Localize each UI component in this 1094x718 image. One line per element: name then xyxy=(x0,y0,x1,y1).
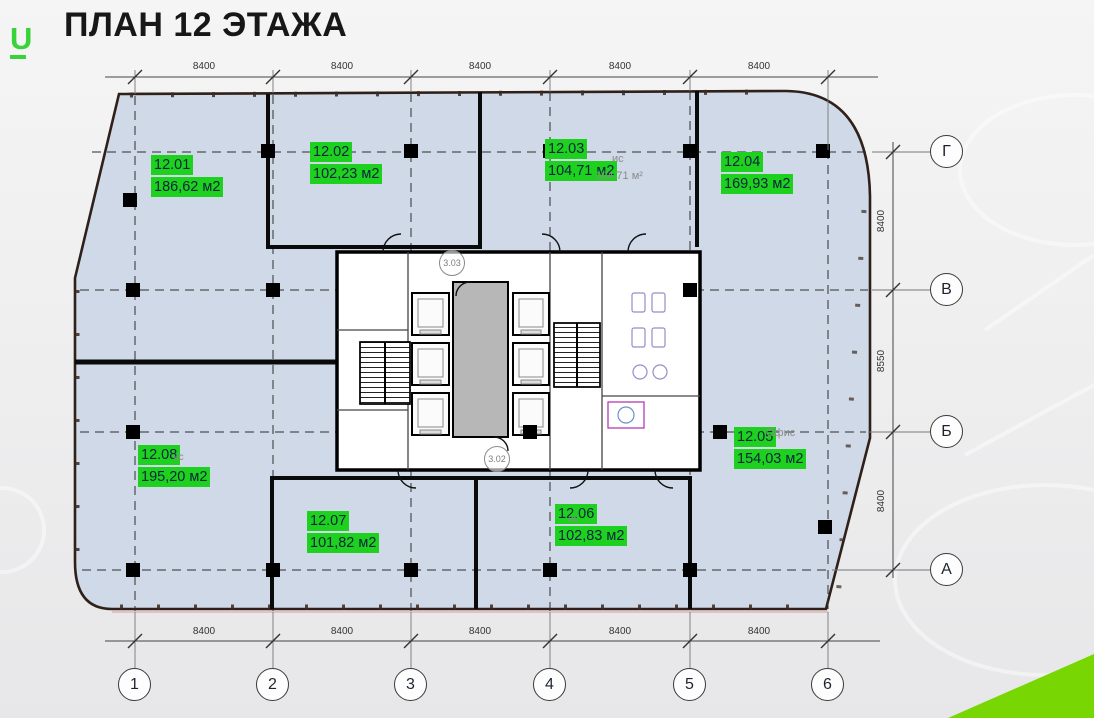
logo-letter: U xyxy=(10,24,32,54)
grid-bubble-v: В xyxy=(930,273,963,306)
dim-bottom: 8400 xyxy=(469,626,491,637)
grid-bubble-5: 5 xyxy=(673,668,706,701)
room-label-12-01: 12.01 186,62 м2 xyxy=(151,155,223,199)
room-number: 12.02 xyxy=(310,142,352,162)
core-label-circle: 3.03 xyxy=(439,250,465,276)
cad-ghost-text: 104.71 м² xyxy=(595,170,643,182)
dim-right: 8400 xyxy=(876,210,887,232)
page-title: ПЛАН 12 ЭТАЖА xyxy=(64,6,347,45)
grid-bubble-g: Г xyxy=(930,135,963,168)
room-label-12-07: 12.07 101,82 м2 xyxy=(307,511,379,555)
room-area: 186,62 м2 xyxy=(151,177,223,197)
service-core xyxy=(337,234,700,488)
dim-top: 8400 xyxy=(193,61,215,72)
grid-bubble-a: А xyxy=(930,553,963,586)
grid-bubble-2: 2 xyxy=(256,668,289,701)
dim-top: 8400 xyxy=(748,61,770,72)
brand-logo: U xyxy=(10,24,32,59)
dim-top: 8400 xyxy=(609,61,631,72)
room-number: 12.03 xyxy=(545,139,587,159)
grid-bubble-3: 3 xyxy=(394,668,427,701)
room-area: 101,82 м2 xyxy=(307,533,379,553)
dim-bottom: 8400 xyxy=(331,626,353,637)
room-label-12-04: 12.04 169,93 м2 xyxy=(721,152,793,196)
grid-bubble-4: 4 xyxy=(533,668,566,701)
floor-plan-drawing xyxy=(0,0,1094,718)
dim-right: 8400 xyxy=(876,490,887,512)
cad-ghost-text: ис xyxy=(612,153,624,165)
dim-top: 8400 xyxy=(331,61,353,72)
room-number: 12.04 xyxy=(721,152,763,172)
dim-bottom: 8400 xyxy=(609,626,631,637)
core-label-circle: 3.02 xyxy=(484,446,510,472)
grid-bubble-1: 1 xyxy=(118,668,151,701)
dim-top: 8400 xyxy=(469,61,491,72)
service-appliance xyxy=(608,402,644,428)
dim-right: 8550 xyxy=(876,350,887,372)
room-area: 102,23 м2 xyxy=(310,164,382,184)
room-area: 102,83 м2 xyxy=(555,526,627,546)
room-number: 12.01 xyxy=(151,155,193,175)
room-label-12-02: 12.02 102,23 м2 xyxy=(310,142,382,186)
room-area: 169,93 м2 xyxy=(721,174,793,194)
room-area: 195,20 м2 xyxy=(138,467,210,487)
dim-bottom: 8400 xyxy=(748,626,770,637)
cad-ghost-text: ис xyxy=(568,514,579,525)
grid-bubble-6: 6 xyxy=(811,668,844,701)
grid-bubble-b: Б xyxy=(930,415,963,448)
cad-ghost-text: Офис xyxy=(766,427,795,439)
room-area: 154,03 м2 xyxy=(734,449,806,469)
dim-bottom: 8400 xyxy=(193,626,215,637)
room-number: 12.07 xyxy=(307,511,349,531)
cad-ghost-text: ис xyxy=(173,452,184,463)
room-label-12-06: 12.06 102,83 м2 xyxy=(555,504,627,548)
